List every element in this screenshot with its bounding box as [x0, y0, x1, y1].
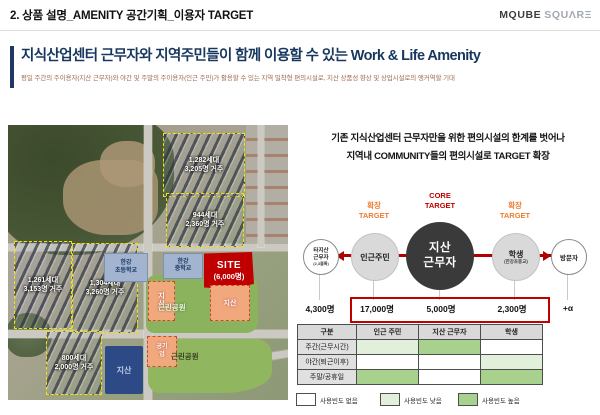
connector-line: [319, 273, 320, 300]
count-other-workers: 4,300명: [305, 303, 334, 315]
legend-label: 사용빈도 낮음: [404, 395, 442, 405]
count-core-workers: 5,000명: [426, 303, 455, 315]
site-marker: SITE (6,000명): [204, 252, 254, 289]
usage-cell: [357, 370, 419, 385]
usage-cell: [481, 355, 543, 370]
residential-block-label: 1,282세대 3,205명 거주: [185, 156, 224, 175]
target-intro-line2: 지역내 COMMUNITY들의 편의시설로 TARGET 확장: [296, 148, 600, 166]
elementary-school: 한강 초등학교: [104, 253, 148, 282]
residential-block-label: 944세대 2,360명 거주: [186, 211, 225, 230]
headline-subtitle: 평일 주간의 주이용자(지산 근무자)와 야간 및 주말의 주이용자(인근 주민…: [21, 72, 455, 82]
residential-block-outline: 944세대 2,360명 거주: [166, 193, 244, 247]
road: [258, 125, 264, 247]
residential-block-outline: 1,282세대 3,205명 거주: [163, 133, 245, 197]
logo-primary: MQUBE: [499, 9, 541, 21]
headline-title: 지식산업센터 근무자와 지역주민들이 함께 이용할 수 있는 Work & Li…: [21, 44, 480, 65]
arrow-right-icon: [543, 251, 551, 261]
park-label: 근린공원: [171, 351, 199, 362]
page-title: 2. 상품 설명_AMENITY 공간기획_이용자 TARGET: [10, 7, 253, 23]
residential-block-label: 800세대 2,000명 거주: [55, 354, 94, 373]
visitors-circle: 방문자: [551, 239, 587, 275]
core-workers-circle: 지산 근무자: [406, 222, 474, 290]
legend-item: 사용빈도 낮음: [380, 393, 442, 406]
legend-swatch: [458, 393, 478, 406]
table-row: 주간(근무시간): [298, 340, 543, 355]
usage-cell: [481, 340, 543, 355]
table-header: 구분: [298, 325, 357, 340]
legend-item: 사용빈도 높음: [458, 393, 520, 406]
connector-line: [567, 273, 568, 300]
row-label: 주말/공휴일: [298, 370, 357, 385]
industry-building: 지산: [105, 346, 143, 394]
neighbors-circle: 인근주민: [351, 233, 399, 281]
count-neighbors: 17,000명: [360, 303, 394, 315]
usage-frequency-table: 구분 인근 주민 지산 근무자 학생 주간(근무시간) 야간(퇴근이후) 주말/…: [297, 324, 543, 385]
industry-parcel: 지산: [210, 285, 250, 321]
legend-item: 사용빈도 없음: [296, 393, 358, 406]
count-visitors: +α: [563, 303, 573, 313]
park-label: 근린공원: [158, 302, 186, 313]
table-header: 인근 주민: [357, 325, 419, 340]
expand-target-annotation: 확장 TARGET: [344, 201, 404, 221]
industry-parcel: 지산: [148, 281, 175, 321]
row-label: 주간(근무시간): [298, 340, 357, 355]
table-row: 주말/공휴일: [298, 370, 543, 385]
core-target-annotation: CORE TARGET: [410, 191, 470, 211]
students-circle: 학생 (한강초중교): [492, 233, 540, 281]
usage-cell: [481, 370, 543, 385]
logo-secondary: SQUΛRΞ: [544, 9, 592, 21]
table-header: 지산 근무자: [419, 325, 481, 340]
legend-label: 사용빈도 높음: [482, 395, 520, 405]
usage-cell: [419, 340, 481, 355]
usage-cell: [357, 340, 419, 355]
header-divider: [0, 30, 600, 31]
usage-cell: [419, 370, 481, 385]
legend-label: 사용빈도 없음: [320, 395, 358, 405]
company-logo: MQUBESQUΛRΞ: [499, 9, 592, 21]
usage-cell: [419, 355, 481, 370]
table-row: 야간(퇴근이후): [298, 355, 543, 370]
residential-block-label: 1,261세대 3,153명 거주: [24, 276, 63, 295]
legend-swatch: [380, 393, 400, 406]
legend-swatch: [296, 393, 316, 406]
usage-cell: [357, 355, 419, 370]
satellite-map: 1,282세대 3,205명 거주 944세대 2,360명 거주 1,261세…: [8, 125, 288, 400]
headline-accent-bar: [10, 46, 14, 88]
middle-school: 한강 중학교: [163, 253, 203, 279]
table-header: 학생: [481, 325, 543, 340]
target-panel: 기존 지식산업센터 근무자만을 위한 편의시설의 한계를 벗어나 지역내 COM…: [296, 125, 600, 415]
row-label: 야간(퇴근이후): [298, 355, 357, 370]
other-workers-circle: 타지산 근무자 (2,3블록): [303, 239, 339, 275]
urban-area: [246, 125, 288, 243]
residential-block-outline: 1,261세대 3,153명 거주: [14, 241, 72, 329]
residential-block-outline: 800세대 2,000명 거주: [46, 331, 102, 395]
expand-target-annotation: 확장 TARGET: [485, 201, 545, 221]
target-intro-line1: 기존 지식산업센터 근무자만을 위한 편의시설의 한계를 벗어나: [296, 130, 600, 148]
count-students: 2,300명: [497, 303, 526, 315]
target-intro: 기존 지식산업센터 근무자만을 위한 편의시설의 한계를 벗어나 지역내 COM…: [296, 130, 600, 166]
